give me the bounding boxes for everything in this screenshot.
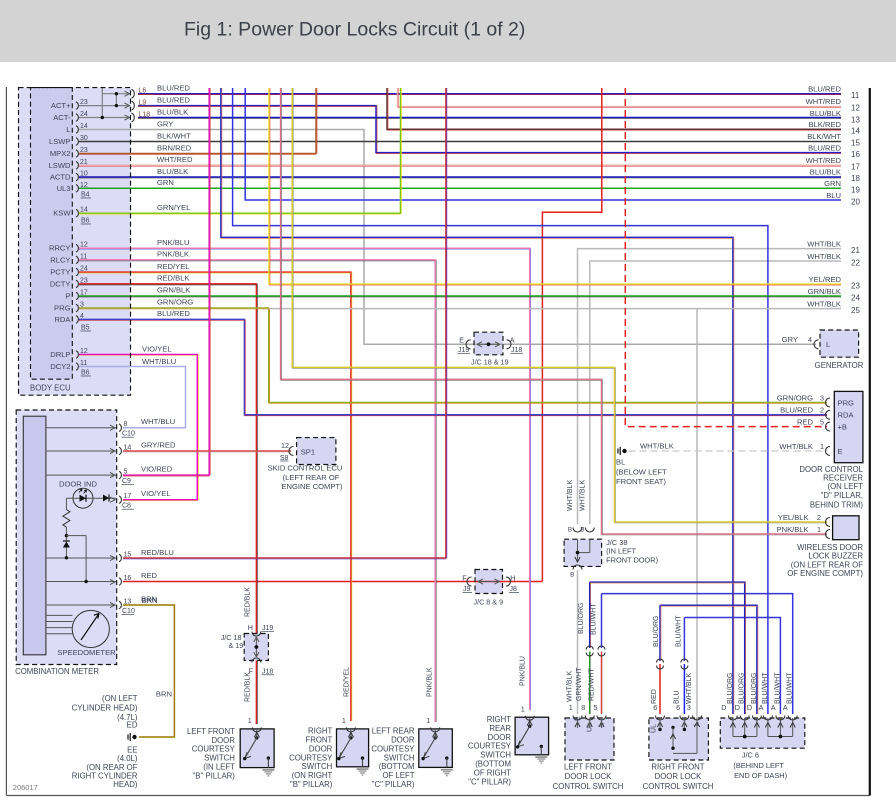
svg-text:LOCK BUZZER: LOCK BUZZER [808,552,863,561]
svg-text:F: F [462,573,467,582]
svg-text:L6: L6 [139,88,147,95]
svg-text:13: 13 [124,599,132,606]
svg-text:SP1: SP1 [301,448,315,457]
svg-text:WHT/RED: WHT/RED [157,155,193,164]
svg-text:"C" PILLAR): "C" PILLAR) [372,780,415,789]
svg-text:23: 23 [851,282,860,291]
svg-text:B: B [568,527,572,534]
svg-text:17: 17 [80,290,88,297]
svg-text:21: 21 [80,159,88,166]
svg-text:BLU/ORG: BLU/ORG [739,672,746,704]
svg-text:(LEFT REAR OF: (LEFT REAR OF [283,473,340,482]
svg-text:1: 1 [521,704,525,713]
svg-text:& 19: & 19 [229,641,244,650]
svg-text:(IN LEFT: (IN LEFT [606,546,636,555]
svg-text:RIGHT: RIGHT [487,715,511,724]
svg-text:WHT/BLK: WHT/BLK [579,480,586,511]
svg-text:P: P [65,292,70,301]
svg-text:YEL/RED: YEL/RED [809,275,842,284]
svg-text:J/C 18 & 19: J/C 18 & 19 [471,358,509,367]
svg-text:C10: C10 [122,608,135,615]
svg-text:5: 5 [124,469,128,476]
svg-text:PNK/BLK: PNK/BLK [157,250,189,259]
svg-text:BLU: BLU [826,191,841,200]
svg-text:20: 20 [851,198,860,207]
svg-text:L18: L18 [139,112,151,119]
svg-text:1: 1 [569,703,573,712]
svg-text:12: 12 [80,348,88,355]
svg-text:RED: RED [651,689,658,704]
svg-text:VIO/YEL: VIO/YEL [142,345,172,354]
svg-text:GRN/WHT: GRN/WHT [576,667,583,701]
svg-text:BLU/WHT: BLU/WHT [762,672,769,704]
svg-text:RRCY: RRCY [49,244,71,253]
svg-text:E: E [575,716,582,721]
svg-text:RIGHT CYLINDER: RIGHT CYLINDER [72,771,138,780]
svg-text:1: 1 [820,442,824,451]
svg-text:YEL/BLK: YEL/BLK [778,513,809,522]
svg-text:(IN LEFT: (IN LEFT [203,763,235,772]
svg-text:14: 14 [80,207,88,214]
svg-text:BL: BL [616,458,625,467]
svg-text:21: 21 [851,246,860,255]
svg-text:"D" PILLAR,: "D" PILLAR, [821,491,863,500]
svg-text:LEFT FRONT: LEFT FRONT [187,727,235,736]
svg-text:WHT/BLU: WHT/BLU [142,357,176,366]
svg-text:3: 3 [820,393,824,402]
svg-text:WHT/BLK: WHT/BLK [567,671,574,702]
svg-text:(BEHIND LEFT: (BEHIND LEFT [733,761,784,770]
svg-text:ACTD: ACTD [50,173,71,182]
svg-text:E: E [838,447,843,456]
svg-text:13: 13 [851,115,860,124]
svg-text:BLU/RED: BLU/RED [157,96,190,105]
svg-text:RDA: RDA [838,411,855,420]
svg-text:DOOR IND: DOOR IND [59,479,97,488]
svg-text:WIRELESS DOOR: WIRELESS DOOR [797,543,863,552]
svg-text:BLU/RED: BLU/RED [157,84,190,93]
svg-text:DOOR: DOOR [309,744,333,753]
svg-text:WHT/RED: WHT/RED [806,156,842,165]
svg-text:GRY: GRY [157,119,173,128]
svg-text:C8: C8 [122,503,131,510]
svg-text:J/C 6: J/C 6 [742,751,759,760]
svg-text:RED/WHT: RED/WHT [589,668,596,701]
svg-text:GRN/ORG: GRN/ORG [157,298,193,307]
svg-text:17: 17 [124,493,132,500]
svg-text:UL: UL [650,724,657,733]
svg-text:PRG: PRG [54,304,71,313]
svg-text:CONTROL SWITCH: CONTROL SWITCH [643,782,714,791]
svg-text:ENGINE COMPT): ENGINE COMPT) [281,482,343,491]
svg-text:COURTESY: COURTESY [468,742,512,751]
svg-text:RED: RED [797,417,814,426]
svg-text:ED: ED [127,720,138,729]
svg-text:L9: L9 [139,100,147,107]
svg-text:PRG: PRG [838,399,855,408]
svg-text:17: 17 [851,162,860,171]
svg-text:B6: B6 [81,218,90,225]
svg-text:BLK/RED: BLK/RED [809,120,842,129]
svg-text:12: 12 [281,441,289,450]
svg-text:GRN/YEL: GRN/YEL [157,203,190,212]
svg-text:BLU/RED: BLU/RED [157,309,190,318]
svg-text:CONTROL SWITCH: CONTROL SWITCH [553,782,624,791]
svg-text:LEFT REAR: LEFT REAR [372,727,415,736]
svg-text:RED/BLU: RED/BLU [141,548,174,557]
svg-text:BLU/WHT: BLU/WHT [675,615,682,647]
svg-text:WHT/BLK: WHT/BLK [686,673,693,704]
svg-text:BLU/BLK: BLU/BLK [157,107,188,116]
svg-text:OF RIGHT: OF RIGHT [474,768,511,777]
svg-text:RIGHT: RIGHT [308,727,332,736]
svg-text:FRONT: FRONT [305,736,332,745]
svg-text:BLU/WHT: BLU/WHT [591,603,598,635]
svg-text:A: A [510,335,515,344]
svg-text:1: 1 [342,716,346,725]
svg-text:EE: EE [127,746,137,755]
svg-text:23: 23 [80,99,88,106]
svg-text:VIO/YEL: VIO/YEL [141,489,171,498]
svg-text:11: 11 [80,360,87,367]
svg-text:REAR: REAR [489,724,511,733]
svg-text:206017: 206017 [13,783,38,792]
svg-text:3: 3 [80,302,84,309]
svg-text:24: 24 [851,294,860,303]
svg-text:15: 15 [851,139,860,148]
svg-text:5: 5 [594,703,598,712]
svg-text:BLU/WHT: BLU/WHT [787,672,794,704]
svg-text:BEHIND TRIM): BEHIND TRIM) [810,501,864,510]
svg-text:SWITCH: SWITCH [384,753,415,762]
svg-text:DOOR: DOOR [488,733,512,742]
svg-text:BLU/ORG: BLU/ORG [653,615,660,647]
svg-text:1: 1 [426,716,430,725]
svg-text:DRLP: DRLP [50,350,70,359]
svg-text:15: 15 [124,552,132,559]
svg-text:12: 12 [80,242,88,249]
svg-text:L: L [694,722,701,726]
svg-text:GRN/BLK: GRN/BLK [157,286,190,295]
svg-text:8: 8 [581,703,585,712]
svg-text:14: 14 [851,127,860,136]
svg-text:COMBINATION METER: COMBINATION METER [15,667,99,676]
svg-text:16: 16 [851,150,860,159]
svg-text:WHT/BLK: WHT/BLK [640,442,674,451]
svg-text:FRONT SEAT): FRONT SEAT) [616,477,666,486]
svg-text:COURTESY: COURTESY [192,745,236,754]
svg-text:BLU/BLK: BLU/BLK [157,167,188,176]
svg-text:H: H [248,623,253,632]
svg-text:1: 1 [817,525,821,534]
svg-text:+B: +B [838,423,848,432]
svg-text:E: E [459,335,464,344]
svg-text:DOOR LOCK: DOOR LOCK [565,772,613,781]
svg-text:KSW: KSW [53,209,71,218]
svg-text:H: H [510,574,515,583]
svg-text:RDA: RDA [54,315,71,324]
svg-text:BLK/WHT: BLK/WHT [157,131,191,140]
svg-text:BRN: BRN [142,596,158,605]
svg-text:22: 22 [851,259,860,268]
svg-text:ACT-: ACT- [53,113,71,122]
svg-text:DOOR: DOOR [391,736,415,745]
svg-text:12: 12 [80,182,88,189]
svg-text:SWITCH: SWITCH [204,754,235,763]
svg-text:FRONT DOOR): FRONT DOOR) [606,555,658,564]
svg-text:BRN/RED: BRN/RED [157,143,192,152]
svg-text:C9: C9 [122,478,131,485]
svg-text:24: 24 [80,111,88,118]
svg-text:4: 4 [80,313,84,320]
svg-text:WHT/BLK: WHT/BLK [807,240,841,249]
svg-text:BLU/ORG: BLU/ORG [727,672,734,704]
svg-text:COURTESY: COURTESY [371,744,415,753]
svg-text:PNK/BLU: PNK/BLU [519,656,526,686]
svg-text:D: D [721,703,726,712]
svg-text:LSWD: LSWD [49,161,71,170]
svg-text:BLU/RED: BLU/RED [808,85,841,94]
svg-text:23: 23 [80,147,88,154]
svg-text:"C" PILLAR): "C" PILLAR) [468,777,511,786]
svg-text:11: 11 [80,253,87,260]
svg-text:(ON LEFT REAR OF: (ON LEFT REAR OF [791,560,863,569]
svg-text:(BOTTOM: (BOTTOM [475,760,511,769]
svg-text:GRN: GRN [824,179,841,188]
svg-text:C10: C10 [122,431,135,438]
svg-text:(ON RIGHT: (ON RIGHT [292,771,333,780]
svg-text:11: 11 [851,91,860,100]
svg-text:RIGHT FRONT: RIGHT FRONT [651,763,704,772]
svg-text:RED/YEL: RED/YEL [343,667,350,697]
svg-text:BLU/RED: BLU/RED [808,144,841,153]
svg-text:BLU/RED: BLU/RED [780,406,813,415]
svg-text:Fig 1: Power Door Locks Circui: Fig 1: Power Door Locks Circuit (1 of 2) [184,19,525,41]
svg-text:BLU/BLK: BLU/BLK [810,109,841,118]
svg-text:BLU/WHT: BLU/WHT [774,672,781,704]
svg-text:24: 24 [80,266,88,273]
svg-text:(ON LEFT: (ON LEFT [102,694,138,703]
svg-text:WHT/BLU: WHT/BLU [141,417,175,426]
svg-text:RED: RED [141,571,158,580]
svg-text:SKID CONTROL ECU: SKID CONTROL ECU [268,464,343,473]
svg-text:BLU/ORG: BLU/ORG [751,672,758,704]
svg-text:B6: B6 [81,370,90,377]
svg-text:B5: B5 [81,325,90,332]
svg-text:L: L [66,125,70,134]
svg-text:PNK/BLU: PNK/BLU [157,238,190,247]
svg-text:RED/BLK: RED/BLK [244,672,251,702]
svg-text:RED/YEL: RED/YEL [157,262,190,271]
svg-text:DOOR: DOOR [211,736,235,745]
svg-text:L: L [599,723,606,727]
svg-text:BLU/ORG: BLU/ORG [578,602,585,634]
svg-text:B: B [570,572,574,579]
svg-text:END OF DASH): END OF DASH) [734,771,787,780]
svg-text:(BELOW LEFT: (BELOW LEFT [616,467,667,476]
svg-text:GRN/BLK: GRN/BLK [808,287,841,296]
svg-text:SWITCH: SWITCH [302,762,333,771]
svg-text:B4: B4 [81,192,90,199]
svg-text:10: 10 [80,171,88,178]
svg-text:16: 16 [124,575,132,582]
svg-text:14: 14 [124,445,132,452]
svg-text:DOOR LOCK: DOOR LOCK [655,772,703,781]
svg-text:GRY/RED: GRY/RED [141,441,176,450]
svg-text:30: 30 [80,135,88,142]
svg-text:GRY: GRY [782,335,798,344]
svg-text:MPX2: MPX2 [50,149,71,158]
svg-text:"B" PILLAR): "B" PILLAR) [193,771,236,780]
svg-text:VIO/RED: VIO/RED [141,464,173,473]
svg-text:(4.0L): (4.0L) [117,754,138,763]
svg-text:UL3: UL3 [57,184,71,193]
svg-text:19: 19 [851,186,860,195]
svg-text:SWITCH: SWITCH [480,751,511,760]
svg-text:BRN: BRN [156,689,172,698]
svg-text:4: 4 [808,335,812,344]
svg-text:2: 2 [820,406,824,415]
svg-text:RED/BLK: RED/BLK [244,587,251,617]
svg-text:1: 1 [248,716,252,725]
svg-text:HEAD): HEAD) [113,780,138,789]
svg-text:COURTESY: COURTESY [289,753,333,762]
svg-text:GENERATOR: GENERATOR [815,361,864,370]
svg-text:2: 2 [817,513,821,522]
svg-text:DCY2: DCY2 [50,362,70,371]
svg-text:GRN: GRN [157,178,174,187]
svg-text:(BOTTOM: (BOTTOM [379,762,415,771]
svg-text:PNK/BLK: PNK/BLK [777,525,809,534]
svg-text:(ON LEFT: (ON LEFT [827,482,863,491]
svg-text:12: 12 [851,104,860,113]
svg-text:25: 25 [851,306,860,315]
svg-text:DOOR CONTROL: DOOR CONTROL [799,465,863,474]
svg-text:SPEEDOMETER: SPEEDOMETER [57,648,116,657]
svg-text:B: B [580,527,584,534]
svg-text:DCTY: DCTY [50,279,71,288]
svg-text:18: 18 [851,174,860,183]
svg-text:WHT/BLK: WHT/BLK [807,252,841,261]
svg-text:OF ENGINE COMPT): OF ENGINE COMPT) [787,569,863,578]
svg-text:L: L [826,340,830,349]
svg-text:BODY ECU: BODY ECU [30,384,71,393]
svg-text:OF LEFT: OF LEFT [382,771,414,780]
svg-text:ACT+: ACT+ [51,101,71,110]
svg-text:14: 14 [80,123,88,130]
svg-text:UL: UL [587,723,594,732]
svg-text:PCTY: PCTY [50,268,70,277]
svg-text:RLCY: RLCY [50,255,70,264]
svg-text:BLU/BLK: BLU/BLK [810,167,841,176]
svg-text:WHT/BLK: WHT/BLK [567,480,574,511]
svg-text:BLK/WHT: BLK/WHT [807,132,841,141]
svg-text:RED/BLK: RED/BLK [157,274,190,283]
svg-text:WHT/RED: WHT/RED [806,97,842,106]
svg-text:CYLINDER HEAD): CYLINDER HEAD) [72,703,138,712]
svg-text:5: 5 [820,417,824,426]
svg-text:PNK/BLK: PNK/BLK [426,667,433,697]
svg-text:LSWP: LSWP [49,137,71,146]
svg-text:BLU: BLU [673,690,680,704]
svg-text:WHT/BLK: WHT/BLK [779,442,813,451]
svg-text:LEFT FRONT: LEFT FRONT [564,763,612,772]
svg-text:J/C 8 & 9: J/C 8 & 9 [474,597,504,606]
svg-text:23: 23 [80,277,88,284]
svg-text:"B" PILLAR): "B" PILLAR) [290,780,333,789]
svg-text:8: 8 [124,421,128,428]
svg-text:GRN/ORG: GRN/ORG [777,393,813,402]
svg-text:WHT/BLK: WHT/BLK [807,300,841,309]
